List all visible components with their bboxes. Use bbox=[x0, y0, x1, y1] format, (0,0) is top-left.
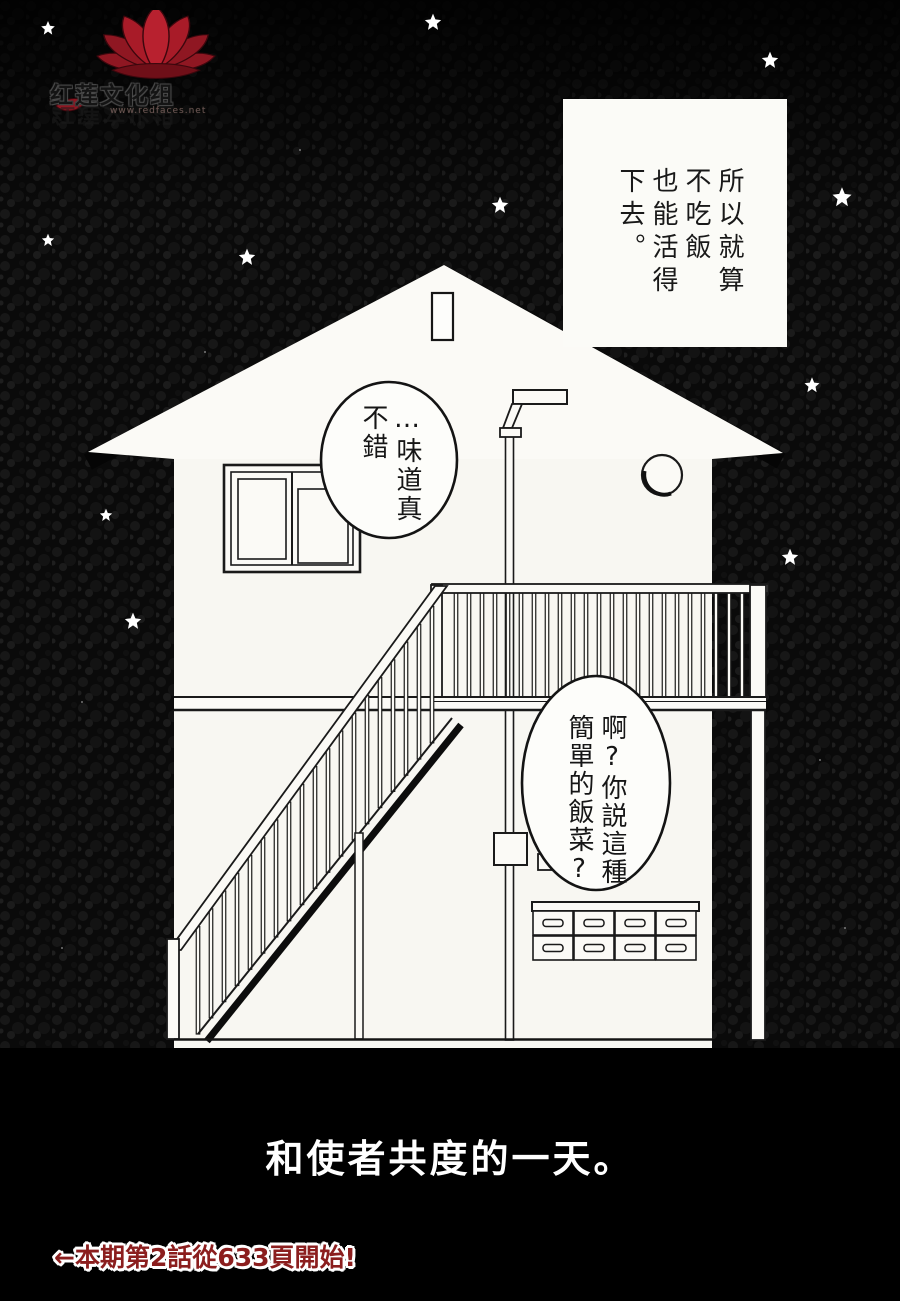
watermark-url: www.redfaces.net bbox=[110, 106, 206, 116]
stair-support-post bbox=[355, 833, 363, 1039]
lamp-collar bbox=[500, 428, 521, 437]
lamp-head bbox=[513, 390, 567, 404]
stair-end-post bbox=[167, 939, 179, 1039]
footer-note: ←本期第2話從633頁開始! bbox=[54, 1238, 356, 1274]
speech-bubble-2-text: 啊?你説這種 簡單的飯菜? bbox=[556, 714, 628, 894]
speech-bubble-1-text: …味道真 不錯 bbox=[338, 404, 424, 554]
scanlation-watermark: 红莲文化组 红莲文化组 www.redfaces.net bbox=[28, 10, 268, 140]
narration-caption-box: 所以就算 不吃飯 也能活得 下去。 bbox=[563, 99, 787, 347]
balcony-support-post bbox=[751, 710, 765, 1040]
mailboxes bbox=[532, 902, 699, 960]
manga-page: { "watermark": { "group_name": "红莲文化组", … bbox=[0, 0, 900, 1301]
narration-caption-text: 所以就算 不吃飯 也能活得 下去。 bbox=[613, 167, 745, 337]
attic-vent-window bbox=[432, 293, 453, 340]
watermark-group-name: 红莲文化组 bbox=[50, 76, 175, 110]
pole-junction-box bbox=[494, 833, 527, 865]
lamp-pole bbox=[506, 432, 514, 1040]
balcony-floor bbox=[174, 697, 766, 710]
page-title: 和使者共度的一天。 bbox=[0, 1128, 900, 1183]
